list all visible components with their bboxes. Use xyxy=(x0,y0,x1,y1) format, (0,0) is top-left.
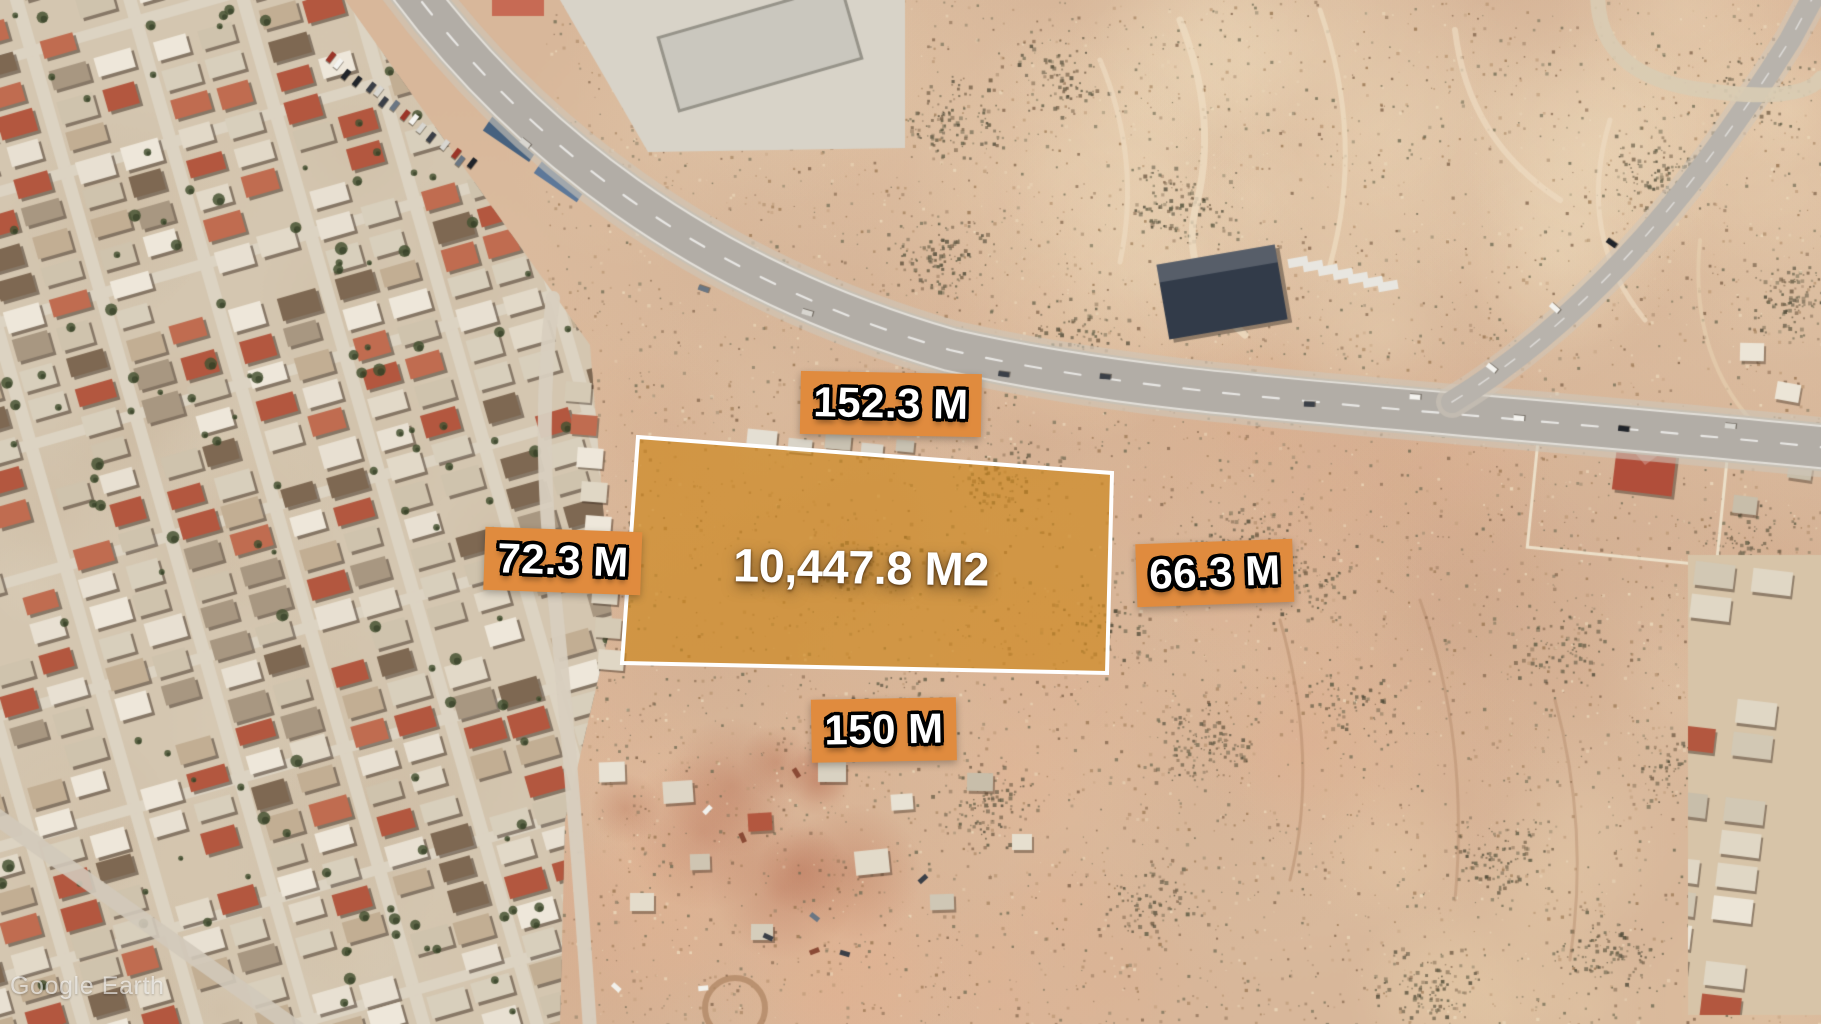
measurement-label-top: 152.3 M xyxy=(800,371,982,437)
parcel-area-label: 10,447.8 M2 xyxy=(733,537,990,596)
satellite-view: 152.3 M 72.3 M 66.3 M 150 M 10,447.8 M2 … xyxy=(0,0,1821,1024)
measurement-label-left: 72.3 M xyxy=(483,527,643,595)
parcel-overlay xyxy=(0,0,1821,1024)
google-earth-watermark: Google Earth xyxy=(10,972,165,1001)
measurement-label-bottom: 150 M xyxy=(811,697,957,763)
measurement-label-right: 66.3 M xyxy=(1135,539,1295,607)
